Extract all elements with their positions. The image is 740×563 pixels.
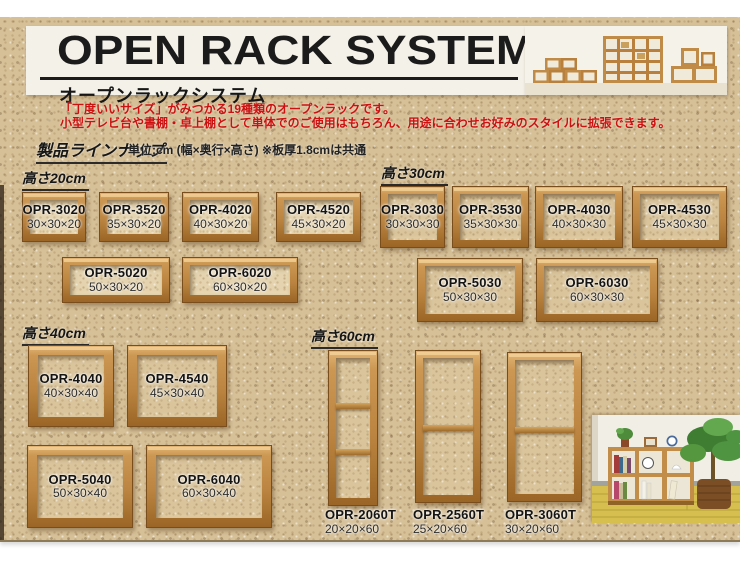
product-model: OPR-4040 <box>39 372 102 387</box>
product-size: 45×30×40 <box>145 387 208 400</box>
rack-opr-4020: OPR-4020 40×30×20 <box>182 192 259 242</box>
rack-opr-6020: OPR-6020 60×30×20 <box>182 257 298 303</box>
product-model: OPR-3530 <box>459 203 522 218</box>
product-size: 20×20×60 <box>325 523 396 537</box>
rack-opr-3530: OPR-3530 35×30×30 <box>452 186 529 248</box>
product-model: OPR-3520 <box>102 203 165 218</box>
product-size: 60×30×20 <box>208 281 271 294</box>
page-title: OPEN RACK SYSTEM <box>57 27 534 74</box>
rack-opr-4040: OPR-4040 40×30×40 <box>28 345 114 427</box>
product-model: OPR-3030 <box>381 203 444 218</box>
rack-opr-4030: OPR-4030 40×30×30 <box>535 186 623 248</box>
rack-opr-2560t <box>415 350 481 503</box>
product-size: 45×30×20 <box>287 218 350 231</box>
product-size: 40×30×40 <box>39 387 102 400</box>
product-model: OPR-5030 <box>438 276 501 291</box>
shelf-divider <box>336 403 370 409</box>
title-band: OPEN RACK SYSTEM オープンラックシステム <box>26 26 525 95</box>
section-heading-60cm: 高さ60cm <box>311 326 378 349</box>
product-size: 60×30×40 <box>177 487 240 500</box>
product-size: 30×30×20 <box>22 218 85 231</box>
rack-opr-3520: OPR-3520 35×30×20 <box>99 192 169 242</box>
product-size: 30×30×30 <box>381 218 444 231</box>
product-size: 40×30×30 <box>547 218 610 231</box>
product-model: OPR-4520 <box>287 203 350 218</box>
intro-line-2: 小型テレビ台や書棚・卓上棚として単体でのご使用はもちろん、用途に合わせお好みのス… <box>60 114 670 131</box>
rack-opr-3030: OPR-3030 30×30×30 <box>380 186 445 248</box>
rack-opr-3060t <box>507 352 582 502</box>
product-model: OPR-2560T <box>413 508 484 523</box>
label-opr-2560t: OPR-2560T 25×20×60 <box>413 508 484 537</box>
product-size: 50×30×40 <box>48 487 111 500</box>
rack-opr-4530: OPR-4530 45×30×30 <box>632 186 727 248</box>
product-model: OPR-5040 <box>48 473 111 488</box>
product-model: OPR-6020 <box>208 266 271 281</box>
rack-opr-6030: OPR-6030 60×30×30 <box>536 258 658 322</box>
rack-arrangement-photo <box>525 26 727 95</box>
lineup-unit-note: 単位:cm (幅×奥行×高さ) ※板厚1.8cmは共通 <box>128 141 366 158</box>
rack-opr-6040: OPR-6040 60×30×40 <box>146 445 272 528</box>
product-size: 25×20×60 <box>413 523 484 537</box>
product-size: 50×30×20 <box>84 281 147 294</box>
section-heading-30cm: 高さ30cm <box>381 163 448 186</box>
product-size: 60×30×30 <box>565 291 628 304</box>
label-opr-3060t: OPR-3060T 30×20×60 <box>505 508 576 537</box>
rack-opr-5020: OPR-5020 50×30×20 <box>62 257 170 303</box>
shelf-divider <box>515 427 574 433</box>
rack-opr-4520: OPR-4520 45×30×20 <box>276 192 361 242</box>
product-model: OPR-3020 <box>22 203 85 218</box>
title-underline <box>40 77 518 80</box>
product-model: OPR-4030 <box>547 203 610 218</box>
rack-opr-5040: OPR-5040 50×30×40 <box>27 445 133 528</box>
product-size: 45×30×30 <box>648 218 711 231</box>
product-model: OPR-4530 <box>648 203 711 218</box>
product-size: 30×20×60 <box>505 523 576 537</box>
section-heading-40cm: 高さ40cm <box>22 323 89 346</box>
product-size: 40×30×20 <box>189 218 252 231</box>
product-size: 50×30×30 <box>438 291 501 304</box>
catalog-page: OPEN RACK SYSTEM オープンラックシステム <box>0 0 740 563</box>
rack-opr-3020: OPR-3020 30×30×20 <box>22 192 86 242</box>
product-size: 35×30×20 <box>102 218 165 231</box>
shelf-divider <box>423 425 473 431</box>
rack-opr-2060t <box>328 350 378 506</box>
product-model: OPR-3060T <box>505 508 576 523</box>
rack-opr-5030: OPR-5030 50×30×30 <box>417 258 523 322</box>
section-heading-20cm: 高さ20cm <box>22 168 89 191</box>
product-model: OPR-2060T <box>325 508 396 523</box>
product-model: OPR-6030 <box>565 276 628 291</box>
product-model: OPR-6040 <box>177 473 240 488</box>
rack-opr-4540: OPR-4540 45×30×40 <box>127 345 227 427</box>
product-size: 35×30×30 <box>459 218 522 231</box>
board-edge-shadow <box>0 185 4 540</box>
shelf-divider <box>336 449 370 455</box>
product-model: OPR-4020 <box>189 203 252 218</box>
product-model: OPR-4540 <box>145 372 208 387</box>
room-scene-photo <box>592 415 740 523</box>
product-model: OPR-5020 <box>84 266 147 281</box>
label-opr-2060t: OPR-2060T 20×20×60 <box>325 508 396 537</box>
